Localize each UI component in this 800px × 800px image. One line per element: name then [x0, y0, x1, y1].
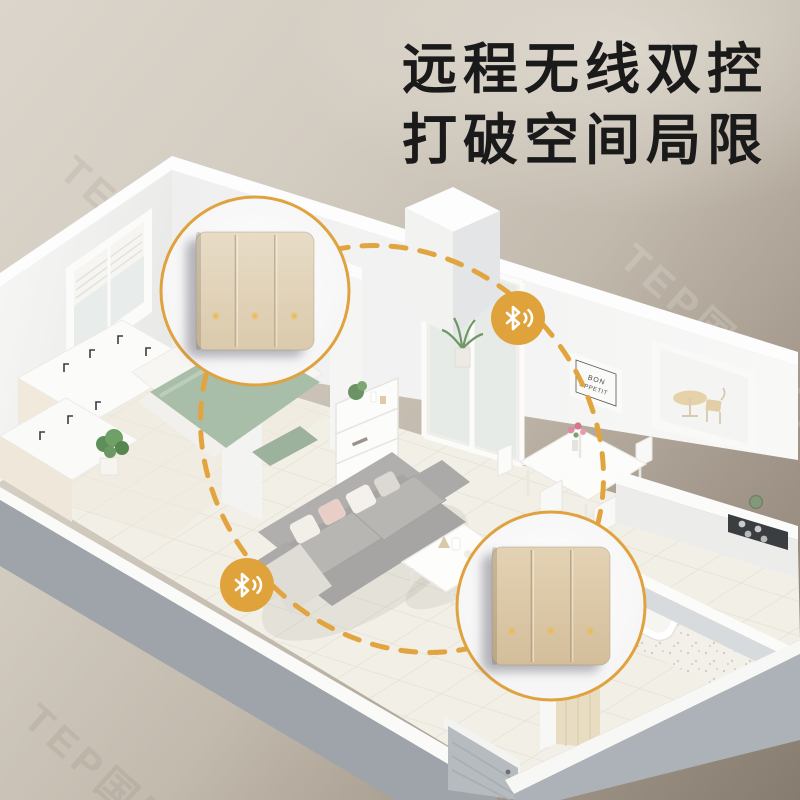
bluetooth-badge [220, 558, 274, 612]
dining-chair [498, 444, 512, 476]
table-decor [452, 538, 460, 550]
switch-rocker [235, 232, 274, 350]
switch-rocker [275, 232, 314, 350]
wall-switch-3gang [196, 232, 314, 350]
wall-switch-3gang [492, 547, 610, 665]
vase [371, 392, 376, 402]
switch-rocker [492, 547, 531, 665]
headline-line-2: 打破空间局限 [402, 105, 782, 176]
door-handle [506, 770, 511, 775]
bluetooth-badge [491, 291, 545, 345]
vase [380, 396, 386, 404]
switch-callout-bottom [457, 512, 645, 700]
marketing-image: TEP国际电工 TEP国际电工 TEP国际电工 TEP国际电工 [0, 0, 800, 800]
switch-rocker [571, 547, 610, 665]
switch-rocker [196, 232, 235, 350]
switch-rocker [531, 547, 570, 665]
cooking-pot [750, 496, 763, 509]
switch-callout-top [161, 197, 349, 385]
apartment-cutaway: BON APPETIT [0, 156, 800, 800]
headline: 远程无线双控 打破空间局限 [402, 34, 782, 176]
headline-line-1: 远程无线双控 [402, 34, 782, 105]
